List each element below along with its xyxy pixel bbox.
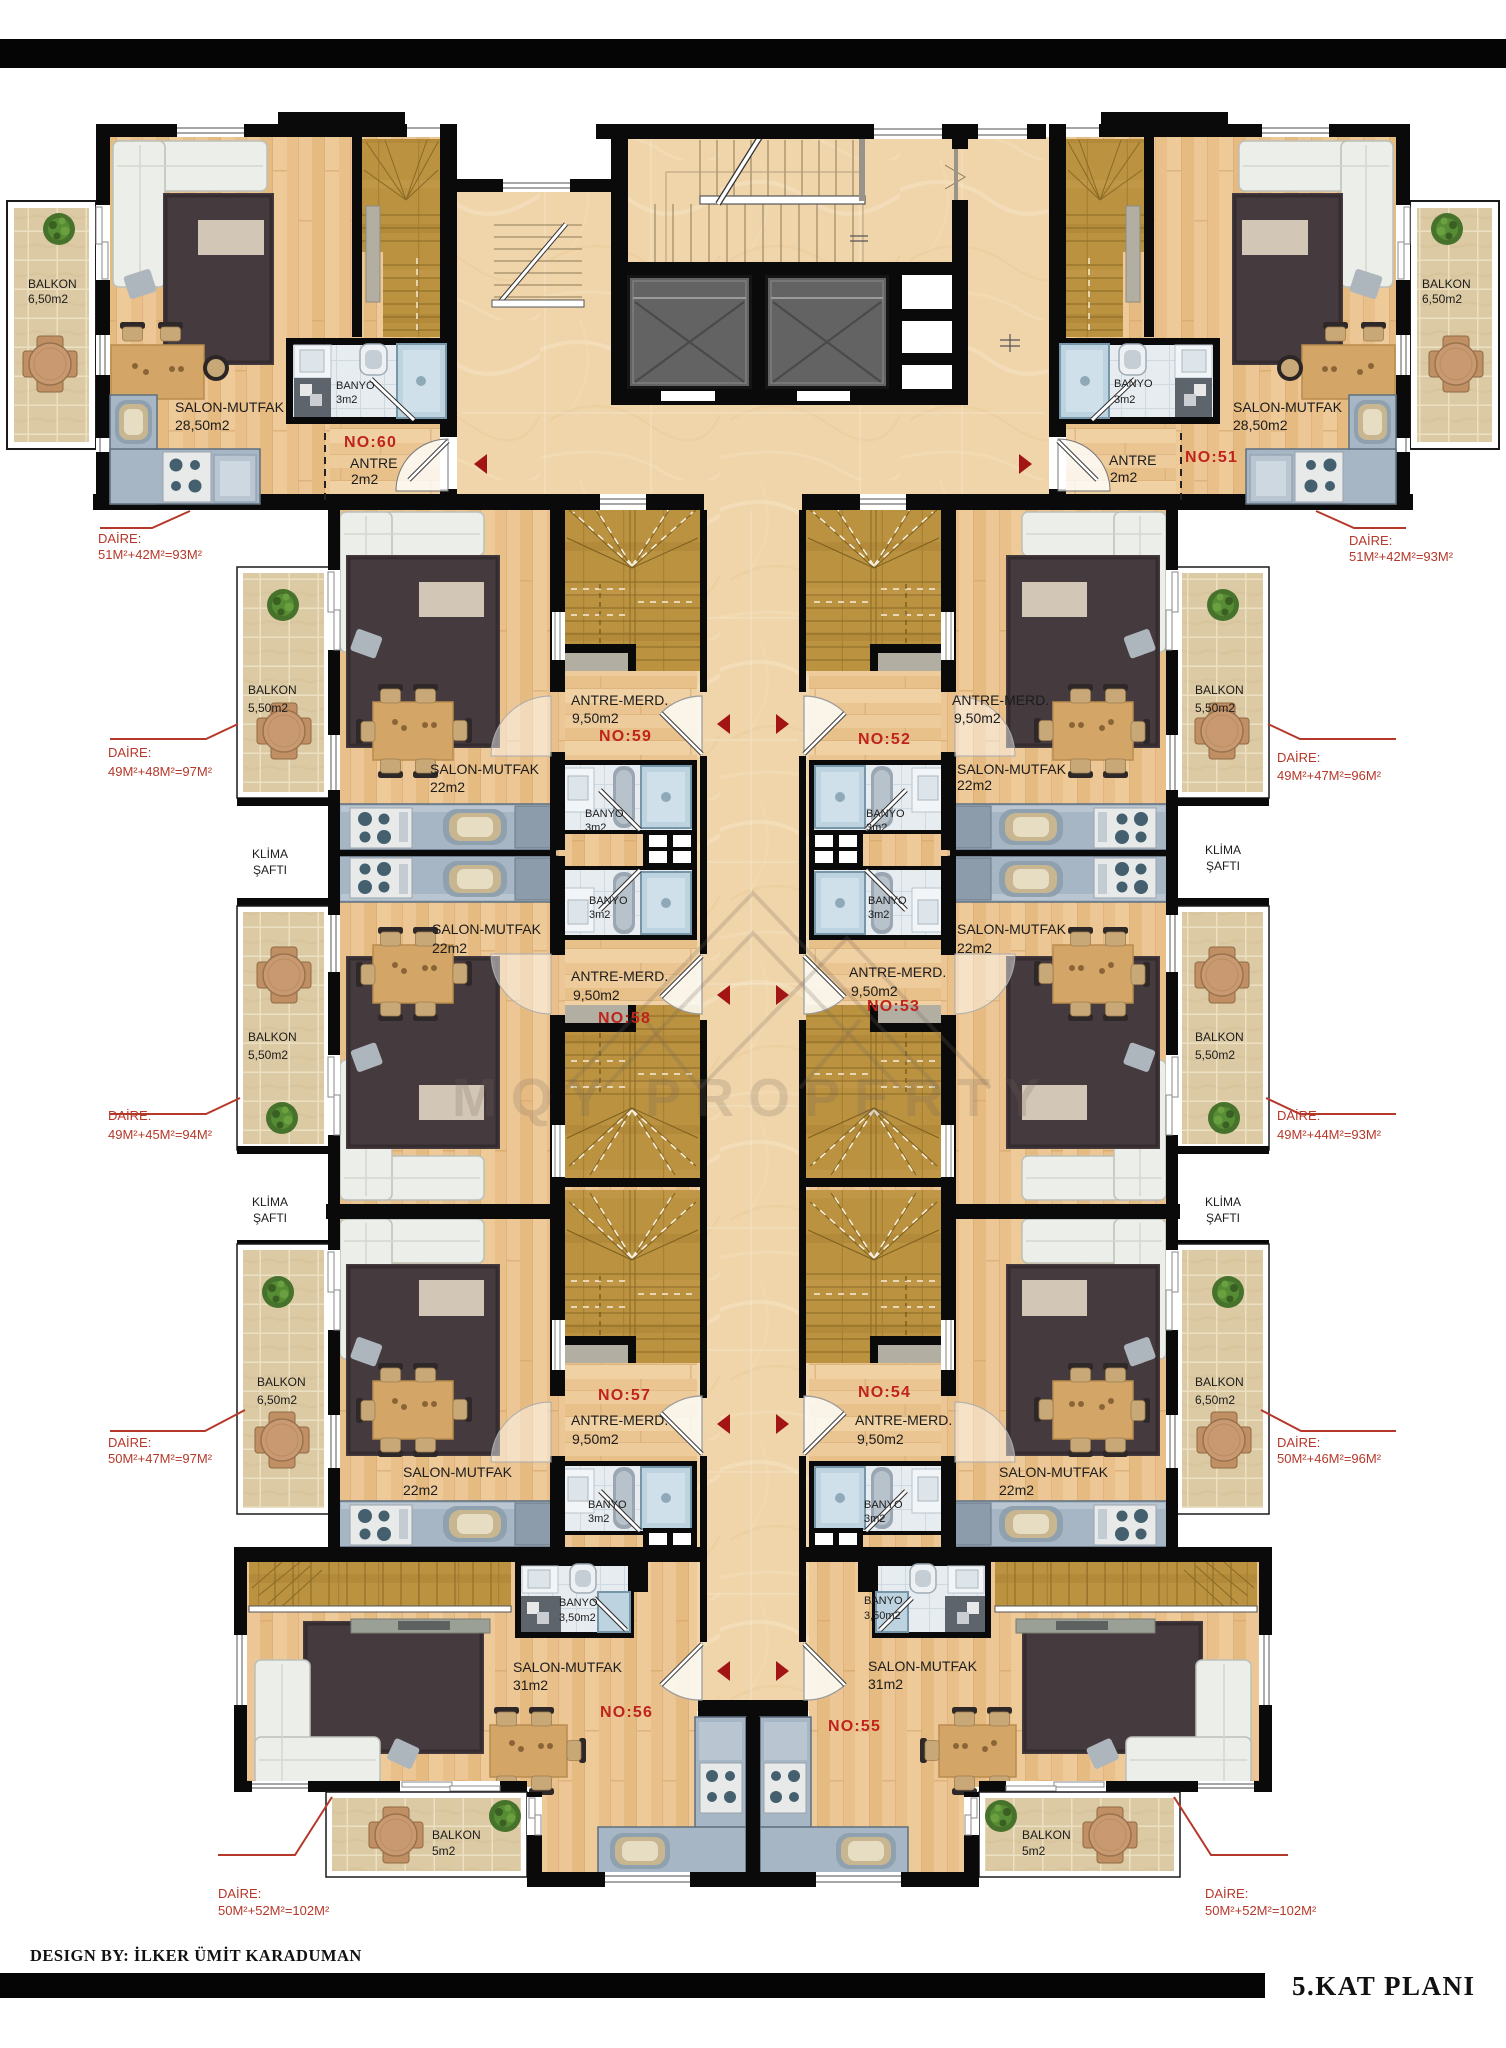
svg-text:KLİMA: KLİMA: [1205, 843, 1241, 857]
svg-text:BALKON: BALKON: [248, 1030, 297, 1044]
svg-text:SALON-MUTFAK: SALON-MUTFAK: [513, 1659, 623, 1675]
svg-text:KLİMA: KLİMA: [252, 1195, 288, 1209]
svg-text:28,50m2: 28,50m2: [175, 417, 230, 433]
svg-text:BANYO: BANYO: [585, 808, 624, 820]
svg-text:ANTRE: ANTRE: [350, 455, 397, 471]
svg-text:3,50m2: 3,50m2: [864, 1610, 901, 1622]
svg-text:BANYO: BANYO: [1114, 378, 1153, 390]
svg-text:49M²+45M²=94M²: 49M²+45M²=94M²: [108, 1127, 213, 1142]
svg-text:ANTRE-MERD.: ANTRE-MERD.: [855, 1412, 952, 1428]
svg-text:49M²+48M²=97M²: 49M²+48M²=97M²: [108, 764, 213, 779]
svg-text:BALKON: BALKON: [1195, 1375, 1244, 1389]
svg-text:SALON-MUTFAK: SALON-MUTFAK: [868, 1658, 978, 1674]
svg-text:ANTRE-MERD.: ANTRE-MERD.: [571, 968, 668, 984]
svg-text:ANTRE-MERD.: ANTRE-MERD.: [571, 692, 668, 708]
svg-text:ANTRE-MERD.: ANTRE-MERD.: [952, 692, 1049, 708]
svg-text:DAİRE:: DAİRE:: [1277, 1435, 1320, 1450]
svg-text:31m2: 31m2: [513, 1677, 548, 1693]
svg-text:BANYO: BANYO: [864, 1595, 903, 1607]
svg-text:KLİMA: KLİMA: [252, 847, 288, 861]
svg-text:22m2: 22m2: [957, 940, 992, 956]
svg-text:3m2: 3m2: [589, 909, 610, 921]
svg-text:ŞAFTI: ŞAFTI: [253, 863, 287, 877]
svg-text:ŞAFTI: ŞAFTI: [1206, 859, 1240, 873]
svg-text:SALON-MUTFAK: SALON-MUTFAK: [432, 921, 542, 937]
svg-text:BANYO: BANYO: [864, 1499, 903, 1511]
svg-text:3m2: 3m2: [336, 394, 357, 406]
svg-text:5.KAT PLANI: 5.KAT PLANI: [1292, 1971, 1476, 2001]
svg-text:5,50m2: 5,50m2: [1195, 1048, 1235, 1062]
svg-text:BALKON: BALKON: [28, 277, 77, 291]
svg-text:22m2: 22m2: [957, 777, 992, 793]
svg-text:5,50m2: 5,50m2: [248, 701, 288, 715]
svg-text:DAİRE:: DAİRE:: [108, 745, 151, 760]
svg-text:9,50m2: 9,50m2: [954, 710, 1001, 726]
svg-text:ANTRE-MERD.: ANTRE-MERD.: [571, 1412, 668, 1428]
svg-text:NO:51: NO:51: [1185, 449, 1238, 466]
svg-text:6,50m2: 6,50m2: [257, 1393, 297, 1407]
svg-text:NO:54: NO:54: [858, 1384, 911, 1401]
svg-text:49M²+44M²=93M²: 49M²+44M²=93M²: [1277, 1127, 1382, 1142]
svg-text:DAİRE:: DAİRE:: [108, 1108, 151, 1123]
svg-text:NO:52: NO:52: [858, 731, 911, 748]
svg-text:BANYO: BANYO: [588, 1499, 627, 1511]
svg-text:NO:55: NO:55: [828, 1718, 881, 1735]
svg-text:DAİRE:: DAİRE:: [218, 1886, 261, 1901]
svg-text:BALKON: BALKON: [257, 1375, 306, 1389]
svg-text:9,50m2: 9,50m2: [573, 987, 620, 1003]
svg-text:5m2: 5m2: [1022, 1844, 1046, 1858]
svg-text:SALON-MUTFAK: SALON-MUTFAK: [403, 1464, 513, 1480]
svg-text:NO:57: NO:57: [598, 1387, 651, 1404]
svg-text:NO:53: NO:53: [867, 998, 920, 1015]
svg-text:49M²+47M²=96M²: 49M²+47M²=96M²: [1277, 768, 1382, 783]
svg-text:BANYO: BANYO: [336, 380, 375, 392]
svg-text:SALON-MUTFAK: SALON-MUTFAK: [957, 921, 1067, 937]
svg-text:SALON-MUTFAK: SALON-MUTFAK: [1233, 399, 1343, 415]
svg-text:3m2: 3m2: [868, 909, 889, 921]
svg-text:28,50m2: 28,50m2: [1233, 417, 1288, 433]
svg-text:NO:60: NO:60: [344, 434, 397, 451]
svg-text:9,50m2: 9,50m2: [572, 710, 619, 726]
svg-text:31m2: 31m2: [868, 1676, 903, 1692]
svg-text:DAİRE:: DAİRE:: [98, 531, 141, 546]
svg-text:50M²+47M²=97M²: 50M²+47M²=97M²: [108, 1451, 213, 1466]
svg-text:DAİRE:: DAİRE:: [1277, 1108, 1320, 1123]
svg-text:SALON-MUTFAK: SALON-MUTFAK: [430, 761, 540, 777]
svg-text:51M²+42M²=93M²: 51M²+42M²=93M²: [1349, 549, 1454, 564]
svg-text:ANTRE: ANTRE: [1109, 452, 1156, 468]
svg-text:3m2: 3m2: [866, 822, 887, 834]
svg-text:ŞAFTI: ŞAFTI: [1206, 1211, 1240, 1225]
svg-text:3,50m2: 3,50m2: [559, 1612, 596, 1624]
svg-text:NO:59: NO:59: [599, 728, 652, 745]
svg-text:BANYO: BANYO: [589, 895, 628, 907]
svg-text:MQY PROPERTY: MQY PROPERTY: [452, 1068, 1054, 1128]
svg-text:51M²+42M²=93M²: 51M²+42M²=93M²: [98, 547, 203, 562]
svg-text:ŞAFTI: ŞAFTI: [253, 1211, 287, 1225]
svg-text:DESIGN BY: İLKER ÜMİT KARADUMA: DESIGN BY: İLKER ÜMİT KARADUMAN: [30, 1946, 362, 1965]
svg-text:50M²+46M²=96M²: 50M²+46M²=96M²: [1277, 1451, 1382, 1466]
svg-text:5,50m2: 5,50m2: [1195, 701, 1235, 715]
svg-text:DAİRE:: DAİRE:: [1205, 1886, 1248, 1901]
svg-text:2m2: 2m2: [351, 471, 378, 487]
svg-text:5m2: 5m2: [432, 1844, 456, 1858]
svg-text:50M²+52M²=102M²: 50M²+52M²=102M²: [218, 1903, 330, 1918]
svg-text:2m2: 2m2: [1110, 469, 1137, 485]
svg-text:BALKON: BALKON: [248, 683, 297, 697]
svg-text:22m2: 22m2: [403, 1482, 438, 1498]
svg-text:6,50m2: 6,50m2: [28, 292, 68, 306]
svg-text:SALON-MUTFAK: SALON-MUTFAK: [999, 1464, 1109, 1480]
svg-text:DAİRE:: DAİRE:: [1349, 533, 1392, 548]
svg-text:NO:56: NO:56: [600, 1704, 653, 1721]
svg-text:22m2: 22m2: [999, 1482, 1034, 1498]
svg-text:3m2: 3m2: [1114, 394, 1135, 406]
svg-text:BALKON: BALKON: [1195, 683, 1244, 697]
svg-text:9,50m2: 9,50m2: [572, 1431, 619, 1447]
svg-text:ANTRE-MERD.: ANTRE-MERD.: [849, 964, 946, 980]
svg-text:6,50m2: 6,50m2: [1422, 292, 1462, 306]
svg-text:9,50m2: 9,50m2: [851, 983, 898, 999]
svg-text:9,50m2: 9,50m2: [857, 1431, 904, 1447]
svg-text:DAİRE:: DAİRE:: [108, 1435, 151, 1450]
svg-text:6,50m2: 6,50m2: [1195, 1393, 1235, 1407]
svg-text:22m2: 22m2: [432, 940, 467, 956]
svg-text:SALON-MUTFAK: SALON-MUTFAK: [175, 399, 285, 415]
svg-text:BANYO: BANYO: [559, 1597, 598, 1609]
svg-text:50M²+52M²=102M²: 50M²+52M²=102M²: [1205, 1903, 1317, 1918]
svg-text:BALKON: BALKON: [1195, 1030, 1244, 1044]
svg-text:BALKON: BALKON: [1022, 1828, 1071, 1842]
svg-text:BALKON: BALKON: [1422, 277, 1471, 291]
svg-text:22m2: 22m2: [430, 779, 465, 795]
svg-text:BANYO: BANYO: [868, 895, 907, 907]
svg-text:BALKON: BALKON: [432, 1828, 481, 1842]
svg-text:3m2: 3m2: [588, 1513, 609, 1525]
svg-text:3m2: 3m2: [864, 1513, 885, 1525]
svg-text:3m2: 3m2: [585, 822, 606, 834]
svg-text:KLİMA: KLİMA: [1205, 1195, 1241, 1209]
svg-text:DAİRE:: DAİRE:: [1277, 750, 1320, 765]
svg-text:BANYO: BANYO: [866, 808, 905, 820]
svg-text:NO:58: NO:58: [598, 1010, 651, 1027]
svg-text:5,50m2: 5,50m2: [248, 1048, 288, 1062]
svg-text:SALON-MUTFAK: SALON-MUTFAK: [957, 761, 1067, 777]
